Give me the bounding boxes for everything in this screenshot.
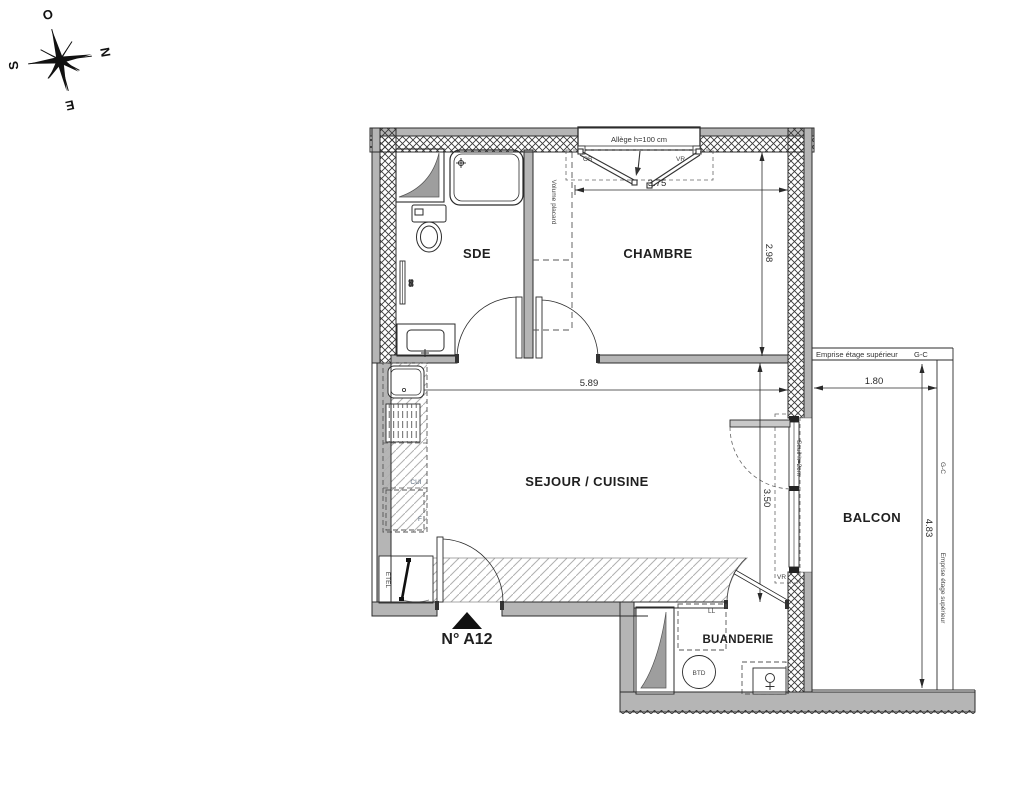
compass-star-icon (28, 29, 92, 91)
room-buanderie-label: BUANDERIE (702, 634, 773, 646)
room-chambre: Volume placard CHAMBRE (533, 152, 693, 330)
dim-sejour-depth-value: 3.50 (761, 489, 772, 508)
placard-volume-label: Volume placard (550, 180, 557, 225)
sde-door-swing (457, 297, 518, 358)
wall-right-insulation-upper (788, 128, 804, 418)
compass-east-label: E (64, 97, 76, 114)
wall-left-gray (372, 128, 380, 363)
floor-plan-page: O N S E (0, 0, 1020, 800)
toilet (412, 205, 446, 252)
wall-bottom-left (372, 602, 437, 616)
dimension-sejour-depth: 3.50 (758, 363, 773, 602)
shower-drain-icon (456, 158, 466, 168)
wall-right-insulation-lower (788, 572, 804, 694)
entrance-marker-icon (452, 612, 482, 629)
dim-chambre-depth-value: 2.98 (763, 244, 774, 263)
threshold-label: Seuil h=2cm (795, 440, 802, 476)
dim-balcon-width-value: 1.80 (865, 376, 884, 387)
kitchen-strip: CUI F (383, 363, 427, 532)
chambre-door-leaf (536, 297, 542, 358)
emprise-top-label: Emprise étage supérieur (816, 350, 898, 359)
compass-south-label: S (6, 60, 22, 71)
window-casement-swing-icon (578, 149, 701, 188)
chambre-door-swing (540, 300, 598, 358)
wall-top-gray-left (370, 128, 578, 136)
dimension-sejour-width: 5.89 (391, 378, 788, 393)
chambre-window: Allège h=100 cm OB VR (566, 127, 713, 188)
compass-west-label: O (41, 6, 55, 23)
wall-chambre-south (598, 355, 788, 363)
shower-tray-inner (454, 154, 519, 201)
room-balcon-label: BALCON (843, 510, 901, 525)
kitchen-sink (388, 366, 424, 398)
dim-balcon-depth-value: 4.83 (923, 519, 934, 538)
gc-right-label: G-C (939, 462, 946, 474)
dim-chambre-width-value: 3.75 (648, 178, 667, 189)
towel-radiator (400, 261, 405, 304)
wall-bottom-band (620, 692, 975, 712)
room-sde: SS SDE (396, 149, 523, 357)
etel-label: ETEL (384, 572, 391, 589)
water-point-box (753, 668, 786, 694)
towel-rail-label: SS (407, 279, 413, 287)
window-vr-label: VR (676, 156, 685, 163)
water-heater-label: BTD (693, 670, 706, 677)
washbasin (397, 324, 455, 357)
dimension-chambre-depth: 2.98 (760, 152, 775, 356)
dim-sejour-width-value: 5.89 (580, 378, 599, 389)
unit-number-label: N° A12 (441, 631, 492, 648)
door-vr-label: VR (777, 574, 786, 581)
room-sejour-label: SEJOUR / CUISINE (525, 474, 648, 489)
compass-rose: O N S E (6, 6, 114, 114)
wall-sde-chambre-partition (524, 150, 533, 358)
washing-machine-label: LL (708, 608, 716, 615)
emprise-right-label: Emprise étage supérieur (939, 553, 946, 625)
upper-floor-soffit-hatch (433, 558, 747, 602)
room-chambre-label: CHAMBRE (623, 246, 692, 261)
wall-right-gray-upper (804, 128, 812, 418)
floor-plan-svg: O N S E (0, 0, 1020, 800)
wall-left-insulation (380, 128, 396, 363)
gc-top-label: G-C (914, 350, 928, 359)
dimension-balcon-width: 1.80 (814, 376, 937, 391)
fridge-label: F (418, 516, 422, 523)
compass-north-label: N (97, 46, 113, 58)
window-sill-label: Allège h=100 cm (611, 135, 667, 144)
kitchen-cui-label: CUI (410, 479, 421, 486)
wall-right-gray-lower (804, 572, 812, 694)
sde-door-leaf (516, 297, 522, 358)
glass-door-swing (730, 427, 792, 489)
room-sde-label: SDE (463, 246, 491, 261)
entrance-door-leaf (437, 537, 443, 602)
dimension-chambre-width: 3.75 (575, 178, 788, 195)
window-ob-label: OB (583, 156, 592, 163)
etel-closet: ETEL (379, 556, 433, 603)
duct-shaft-icon (399, 153, 439, 197)
dimension-balcon-depth: 4.83 (920, 364, 935, 688)
